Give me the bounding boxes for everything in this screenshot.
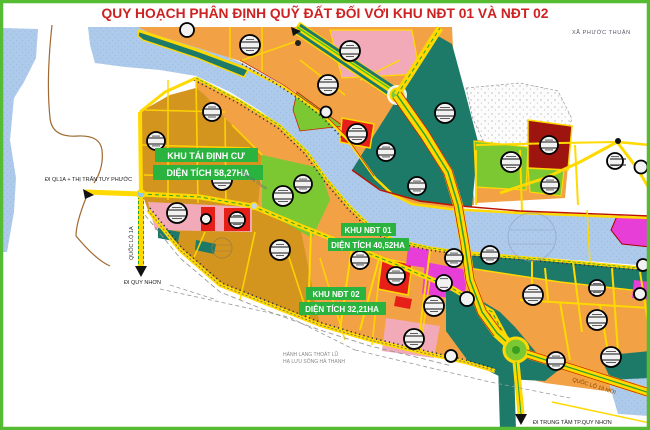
- svg-text:KHU NĐT 02: KHU NĐT 02: [312, 290, 360, 299]
- svg-text:ĐI QL1A + THỊ TRẤN TUY PHƯỚC: ĐI QL1A + THỊ TRẤN TUY PHƯỚC: [45, 176, 132, 183]
- svg-text:ĐI QUY NHƠN: ĐI QUY NHƠN: [124, 280, 161, 286]
- svg-text:KHU TÁI ĐỊNH CƯ: KHU TÁI ĐỊNH CƯ: [167, 151, 245, 161]
- svg-text:QUY HOẠCH PHÂN ĐỊNH QUỸ ĐẤT ĐỐ: QUY HOẠCH PHÂN ĐỊNH QUỸ ĐẤT ĐỐI VỚI KHU …: [102, 4, 549, 21]
- svg-text:QUỐC LỘ 1A: QUỐC LỘ 1A: [128, 226, 135, 260]
- svg-text:HÀNH LANG THOÁT LŨ: HÀNH LANG THOÁT LŨ: [283, 351, 338, 358]
- svg-text:XÃ PHƯỚC THUẬN: XÃ PHƯỚC THUẬN: [572, 29, 631, 36]
- svg-text:DIỆN TÍCH 58,27HA: DIỆN TÍCH 58,27HA: [166, 167, 250, 178]
- svg-text:DIỆN TÍCH 32,21HA: DIỆN TÍCH 32,21HA: [305, 305, 379, 314]
- svg-text:KHU NĐT 01: KHU NĐT 01: [344, 226, 392, 235]
- svg-text:DIỆN TÍCH 40,52HA: DIỆN TÍCH 40,52HA: [331, 241, 405, 250]
- svg-text:HẠ LƯU SÔNG HÀ THANH: HẠ LƯU SÔNG HÀ THANH: [283, 358, 345, 365]
- svg-text:ĐI TRUNG TÂM TP.QUY NHƠN: ĐI TRUNG TÂM TP.QUY NHƠN: [533, 419, 612, 426]
